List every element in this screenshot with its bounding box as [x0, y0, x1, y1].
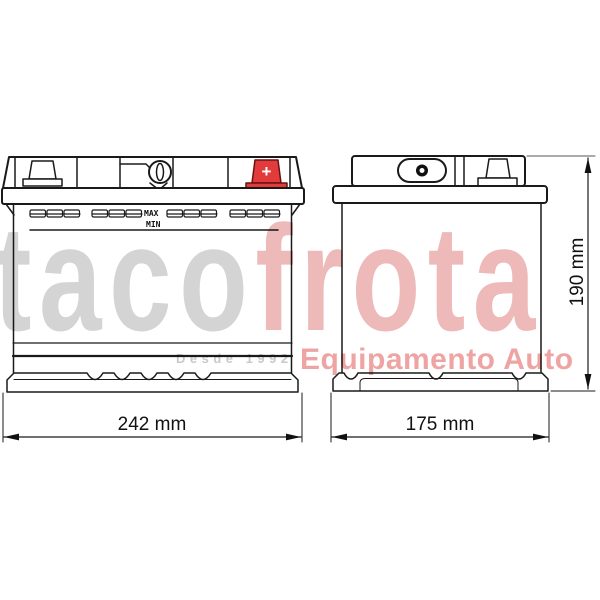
- height-value: 190 mm: [567, 238, 588, 307]
- drawing-svg: MAX MIN: [0, 0, 600, 600]
- arrow-right-icon: [533, 434, 548, 441]
- max-level-label: MAX: [144, 209, 159, 218]
- arrow-left-icon: [4, 434, 19, 441]
- side-width-value: 175 mm: [406, 414, 475, 435]
- handle-icon: [398, 159, 446, 182]
- arrow-up-icon: [585, 158, 592, 173]
- arrow-down-icon: [585, 374, 592, 389]
- arrow-left-icon: [332, 434, 347, 441]
- battery-technical-drawing: MAX MIN: [0, 0, 600, 600]
- dimension-side-width: 175 mm: [331, 393, 549, 442]
- front-view: MAX MIN: [2, 157, 304, 392]
- dimension-front-width: 242 mm: [3, 393, 302, 442]
- front-lid-flange: [2, 188, 304, 204]
- side-lid-flange: [333, 186, 547, 203]
- front-tab-right: [292, 204, 300, 215]
- side-base: [333, 373, 548, 391]
- plus-symbol: +: [262, 162, 272, 181]
- arrow-right-icon: [286, 434, 301, 441]
- min-level-label: MIN: [146, 220, 161, 229]
- side-view: [333, 156, 548, 391]
- front-base: [7, 373, 298, 392]
- front-width-value: 242 mm: [118, 414, 187, 435]
